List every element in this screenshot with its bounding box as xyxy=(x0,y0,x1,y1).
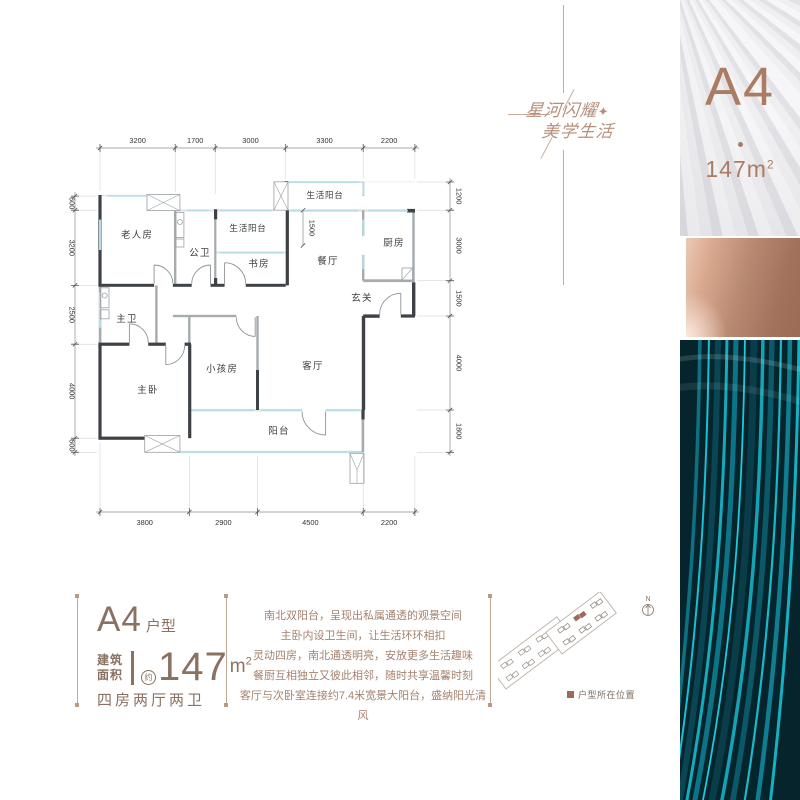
description-line: 南北双阳台，呈现出私属通透的观景空间 xyxy=(238,606,488,626)
north-indicator: N xyxy=(643,596,654,616)
slogan-divider-bottom xyxy=(563,150,564,285)
dim-label-inner: 1500 xyxy=(308,220,317,236)
badge-area-sup: 2 xyxy=(767,157,775,171)
room-label-service-balcony-2: 生活阳台 xyxy=(306,190,343,200)
dim-label: 1500 xyxy=(455,290,464,306)
teal-curves-image xyxy=(680,340,800,800)
dim-label: 600 xyxy=(68,439,77,451)
unit-badge-code: A4 xyxy=(680,56,800,118)
extension-lines xyxy=(79,152,446,508)
room-label-living: 客厅 xyxy=(302,360,323,372)
room-label-dining: 餐厅 xyxy=(317,255,338,267)
dim-label: 3000 xyxy=(455,237,464,253)
dim-label: 1700 xyxy=(187,136,203,145)
dim-label: 1800 xyxy=(455,423,464,439)
description-line: 客厅与次卧室连接约7.4米宽景大阳台，盛纳阳光清风 xyxy=(238,686,488,726)
unit-code: A4 xyxy=(97,600,142,639)
badge-area-text: 147m xyxy=(705,156,767,182)
room-label-master-bath: 主卫 xyxy=(116,313,137,325)
bathroom-fixtures xyxy=(100,213,183,319)
room-label-guest-bath: 公卫 xyxy=(189,248,210,259)
dim-label: 1200 xyxy=(455,188,464,204)
closet-and-shaft-boxes xyxy=(145,182,413,484)
teal-curves-art xyxy=(680,340,800,800)
dim-label: 3800 xyxy=(136,518,152,527)
room-label-foyer: 玄关 xyxy=(351,292,372,304)
dim-label: 4500 xyxy=(302,518,318,527)
unit-badge-area: 147m2 xyxy=(680,156,800,183)
brochure-page: 3200 1700 3000 3300 2200 3800 2900 4500 … xyxy=(0,0,800,800)
area-row: 建筑 面积 约147m2 xyxy=(97,645,252,685)
area-label-line1: 建筑 xyxy=(97,653,123,667)
room-labels: 老人房 公卫 生活阳台 书房 生活阳台 餐厅 厨房 玄关 主卫 主卧 小孩房 客… xyxy=(116,190,404,437)
dim-label: 2500 xyxy=(68,307,77,323)
dimension-ticks xyxy=(71,144,454,516)
layout-text: 四房两厅两卫 xyxy=(97,689,205,710)
separator-line-left xyxy=(77,598,78,703)
room-label-kitchen: 厨房 xyxy=(383,237,404,249)
area-divider-bar xyxy=(131,651,134,685)
badge-dot-icon xyxy=(738,142,743,147)
description-line: 餐厨互相独立又彼此相邻，随时共享温馨时刻 xyxy=(238,666,488,686)
room-label-service-balcony-1: 生活阳台 xyxy=(229,223,266,233)
fan-texture-image: A4 147m2 xyxy=(680,0,800,236)
dim-label: 4000 xyxy=(68,383,77,399)
info-strip: A4户型 建筑 面积 约147m2 四房两厅两卫 南北双阳台，呈现出私属通透的观… xyxy=(0,590,800,720)
room-label-study: 书房 xyxy=(248,258,269,270)
room-label-balcony: 阳台 xyxy=(268,425,289,437)
separator-line-right xyxy=(490,598,491,703)
slogan-block: 星河闪耀✦ 美学生活 xyxy=(500,0,670,300)
description-block: 南北双阳台，呈现出私属通透的观景空间 主卧内设卫生间，让生活环环相扣 灵动四房，… xyxy=(238,606,488,726)
slogan-divider-top xyxy=(563,5,564,93)
dim-label: 3000 xyxy=(242,136,258,145)
dim-label: 2900 xyxy=(215,518,231,527)
dimension-lines xyxy=(75,148,450,512)
area-value: 147 xyxy=(158,645,228,690)
dim-label: 3200 xyxy=(68,240,77,256)
dim-label: 3200 xyxy=(129,136,145,145)
area-label: 建筑 面积 xyxy=(97,653,123,683)
legend-square-icon xyxy=(567,691,574,698)
copper-gradient-image xyxy=(686,238,800,337)
separator-line-middle xyxy=(226,598,227,703)
structural-walls xyxy=(98,181,415,440)
room-label-elder: 老人房 xyxy=(121,229,153,241)
dimension-labels: 3200 1700 3000 3300 2200 3800 2900 4500 … xyxy=(68,136,464,527)
room-label-master-bed: 主卧 xyxy=(137,384,158,396)
floor-plan: 3200 1700 3000 3300 2200 3800 2900 4500 … xyxy=(60,130,540,560)
unit-suffix: 户型 xyxy=(146,618,176,635)
site-legend: 户型所在位置 xyxy=(567,689,635,700)
north-label: N xyxy=(645,596,650,603)
dim-label: 3300 xyxy=(316,136,332,145)
approx-circle-icon: 约 xyxy=(141,670,156,685)
dim-label: 2200 xyxy=(381,136,397,145)
legend-label: 户型所在位置 xyxy=(578,689,635,700)
dim-label: 2200 xyxy=(381,518,397,527)
site-map: N 户型所在位置 xyxy=(498,592,668,717)
dim-label: 600 xyxy=(68,197,77,209)
room-label-kids-bed: 小孩房 xyxy=(206,363,238,375)
description-line: 灵动四房，南北通透明亮，安放更多生活趣味 xyxy=(238,646,488,666)
area-label-line2: 面积 xyxy=(97,668,123,682)
unit-title: A4户型 xyxy=(97,600,176,640)
dim-label: 4000 xyxy=(455,355,464,371)
description-line: 主卧内设卫生间，让生活环环相扣 xyxy=(238,626,488,646)
